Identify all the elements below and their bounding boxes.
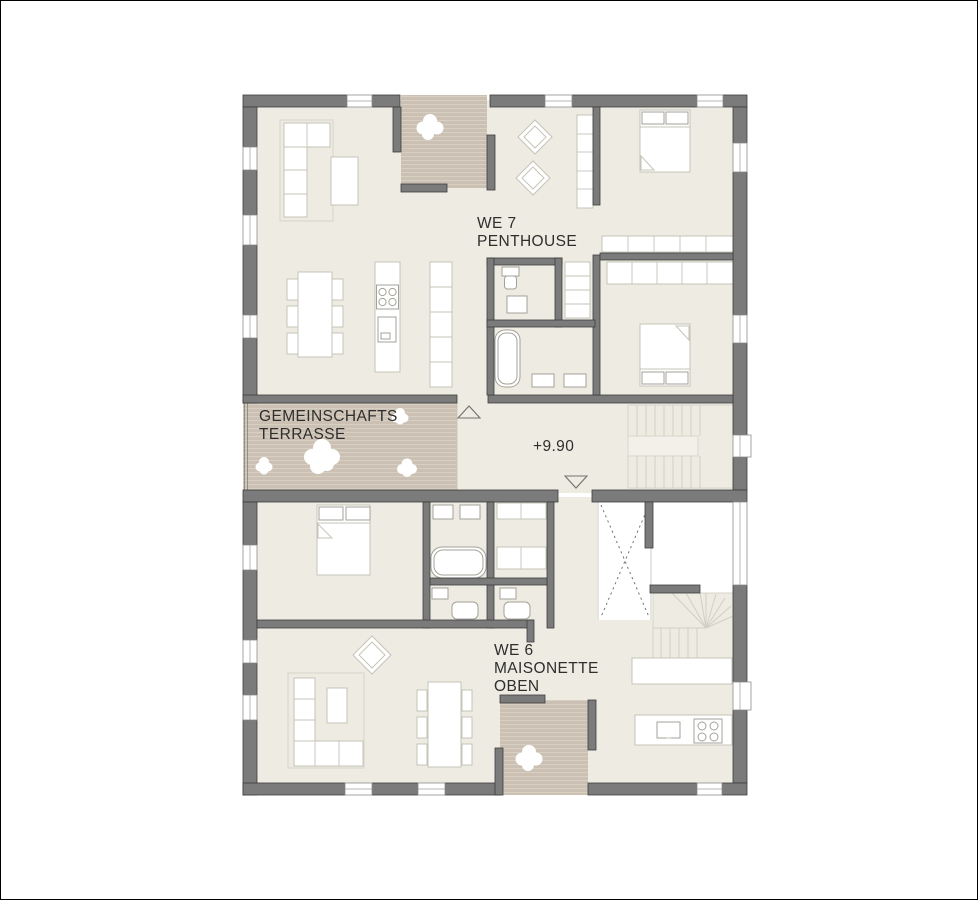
sofa	[284, 147, 307, 217]
wall-segment	[650, 585, 700, 593]
wall-segment	[500, 695, 545, 703]
window	[733, 315, 747, 343]
armchair	[327, 688, 347, 723]
coffee-table	[331, 157, 358, 205]
wall-segment	[243, 570, 257, 640]
wall-segment	[723, 95, 747, 107]
toilet-icon	[504, 602, 530, 619]
pillow	[642, 372, 664, 384]
pillow	[666, 112, 688, 124]
chair	[462, 744, 472, 765]
window	[243, 215, 257, 245]
window	[733, 435, 751, 457]
we6-loggia-deck	[500, 700, 588, 795]
void-area	[597, 593, 653, 620]
chair	[287, 333, 298, 354]
wall-segment	[733, 343, 747, 435]
wall-segment	[243, 107, 257, 147]
wall-segment	[588, 700, 596, 750]
chair	[287, 279, 298, 300]
wall-segment	[733, 585, 747, 682]
wall-segment	[487, 135, 495, 190]
wall-segment	[490, 95, 545, 107]
pillow	[346, 507, 370, 520]
dining-table	[428, 682, 461, 767]
chair	[287, 306, 298, 327]
wall-segment	[393, 107, 401, 152]
wall-segment	[243, 170, 257, 215]
pillow	[319, 507, 343, 520]
sofa	[294, 741, 363, 766]
chair	[462, 690, 472, 711]
wall-segment	[733, 172, 747, 315]
cooktop-icon	[377, 285, 399, 309]
wall-segment	[547, 502, 554, 628]
sofa	[294, 678, 315, 741]
wall-segment	[588, 783, 697, 795]
wall-segment	[423, 502, 430, 628]
sink-icon	[507, 296, 527, 313]
shelf	[577, 115, 593, 208]
wall-segment	[722, 783, 747, 795]
wall-segment	[243, 338, 257, 403]
chair	[417, 717, 427, 738]
wardrobe	[602, 236, 733, 252]
window	[733, 502, 747, 585]
wall-segment	[487, 502, 494, 628]
chair	[332, 333, 343, 354]
chair	[332, 306, 343, 327]
wall-segment	[487, 320, 595, 327]
window	[243, 147, 257, 170]
wall-segment	[243, 502, 257, 545]
we7-loggia-deck	[401, 95, 487, 188]
stair-landing	[628, 436, 698, 456]
window	[733, 143, 747, 172]
wall-segment	[593, 107, 600, 205]
window	[697, 95, 723, 107]
window	[733, 682, 751, 710]
floor-plan-page: WE 7 PENTHOUSE GEMEINSCHAFTS TERRASSE +9…	[0, 0, 978, 900]
chair	[417, 690, 427, 711]
window	[545, 95, 572, 107]
wall-segment	[592, 490, 747, 502]
wall-segment	[572, 95, 697, 107]
wall-segment	[243, 395, 457, 403]
toilet-icon	[502, 267, 519, 276]
wall-segment	[600, 253, 733, 260]
label-we6-type: MAISONETTE	[494, 660, 599, 677]
sink-icon	[564, 374, 586, 387]
wall-segment	[372, 783, 418, 795]
window	[347, 95, 372, 107]
toilet-icon	[505, 276, 517, 289]
wall-segment	[445, 783, 500, 795]
wall-segment	[733, 710, 747, 783]
sink-icon	[532, 374, 554, 387]
floor-plan-canvas: WE 7 PENTHOUSE GEMEINSCHAFTS TERRASSE +9…	[0, 0, 978, 900]
window	[697, 783, 722, 795]
wall-segment	[430, 578, 547, 585]
window	[243, 545, 257, 570]
wardrobe	[607, 262, 733, 284]
label-level: +9.90	[533, 438, 574, 455]
window	[418, 783, 445, 795]
sideboard	[632, 658, 732, 684]
dressing-shelf	[497, 503, 546, 519]
wall-segment	[401, 184, 447, 192]
wall-segment	[487, 258, 562, 265]
sink-icon	[500, 588, 516, 599]
chair	[417, 744, 427, 765]
window	[243, 640, 257, 663]
wall-segment	[243, 783, 345, 795]
wall-segment	[555, 258, 562, 327]
wall-segment	[243, 663, 257, 695]
wall-segment	[527, 620, 534, 642]
wall-segment	[733, 107, 747, 143]
void-area	[597, 502, 733, 593]
wall-segment	[243, 490, 558, 502]
toilet-icon	[452, 602, 478, 619]
wall-segment	[372, 95, 400, 107]
sink-icon	[657, 722, 680, 738]
label-we7: WE 7	[477, 215, 517, 232]
pillow	[666, 372, 688, 384]
window	[345, 783, 372, 795]
sink-icon	[432, 588, 448, 599]
chair	[332, 279, 343, 300]
chair	[462, 717, 472, 738]
tall-cabinets	[430, 262, 452, 387]
window	[243, 695, 257, 720]
wall-segment	[645, 502, 653, 548]
wall-segment	[495, 748, 503, 795]
wall-segment	[488, 395, 733, 403]
wall-segment	[257, 620, 533, 628]
dining-table	[298, 272, 332, 357]
window	[243, 315, 257, 338]
wall-segment	[243, 245, 257, 315]
label-we6: WE 6	[494, 642, 534, 659]
label-terrace-2: TERRASSE	[259, 426, 346, 443]
wall-segment	[243, 95, 347, 107]
wall-segment	[733, 457, 747, 490]
sink-icon	[460, 505, 480, 519]
label-we6-level: OBEN	[494, 678, 540, 695]
dressing-shelf	[497, 547, 546, 569]
sink-icon	[433, 505, 453, 519]
label-we7-type: PENTHOUSE	[477, 233, 577, 250]
label-terrace: GEMEINSCHAFTS	[259, 408, 398, 425]
pillow	[642, 112, 664, 124]
